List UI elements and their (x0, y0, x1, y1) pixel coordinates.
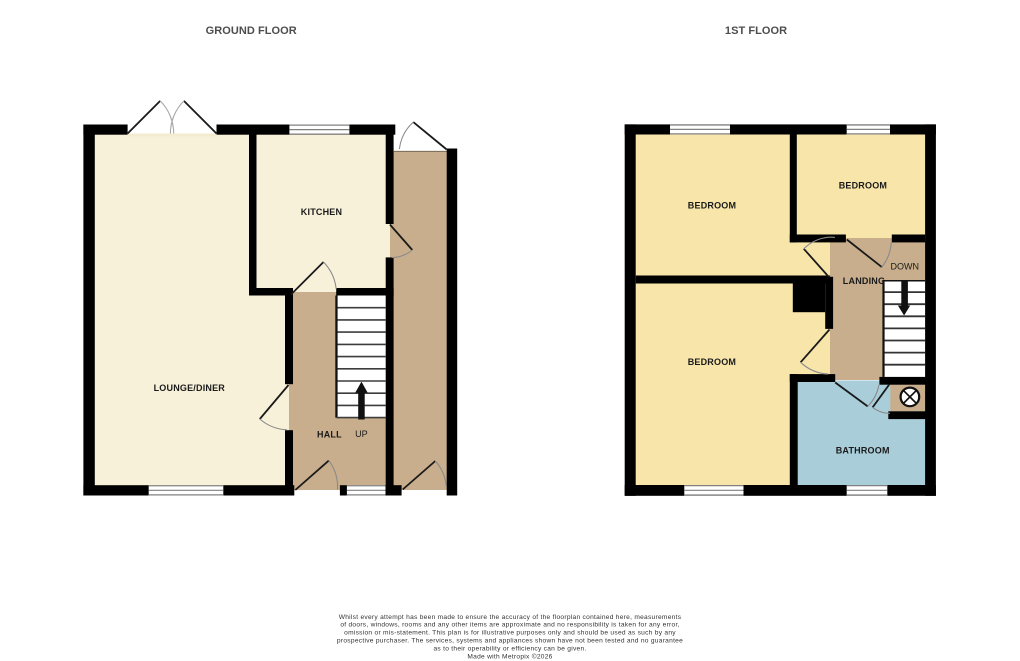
svg-text:prospective purchaser. The ser: prospective purchaser. The services, sys… (337, 638, 683, 645)
svg-text:of doors, windows, rooms and a: of doors, windows, rooms and any other i… (340, 622, 679, 629)
svg-text:BEDROOM: BEDROOM (688, 357, 736, 367)
svg-text:Whilst every attempt has been: Whilst every attempt has been made to en… (339, 614, 682, 621)
svg-text:LOUNGE/DINER: LOUNGE/DINER (154, 383, 226, 393)
svg-text:DOWN: DOWN (891, 262, 920, 272)
svg-text:GROUND FLOOR: GROUND FLOOR (206, 25, 297, 37)
svg-text:omission or mis-statement. Thi: omission or mis-statement. This plan is … (344, 630, 676, 637)
svg-text:BEDROOM: BEDROOM (839, 181, 887, 191)
svg-text:as to their operability or eff: as to their operability or efficiency ca… (433, 645, 586, 652)
svg-text:Made with Metropix ©2026: Made with Metropix ©2026 (467, 652, 552, 660)
svg-text:HALL: HALL (317, 430, 342, 440)
svg-text:BEDROOM: BEDROOM (688, 201, 736, 211)
svg-text:BATHROOM: BATHROOM (836, 446, 890, 456)
svg-text:UP: UP (355, 429, 368, 439)
svg-text:KITCHEN: KITCHEN (301, 207, 342, 217)
svg-text:LANDING: LANDING (843, 276, 885, 286)
svg-text:1ST FLOOR: 1ST FLOOR (725, 25, 787, 37)
